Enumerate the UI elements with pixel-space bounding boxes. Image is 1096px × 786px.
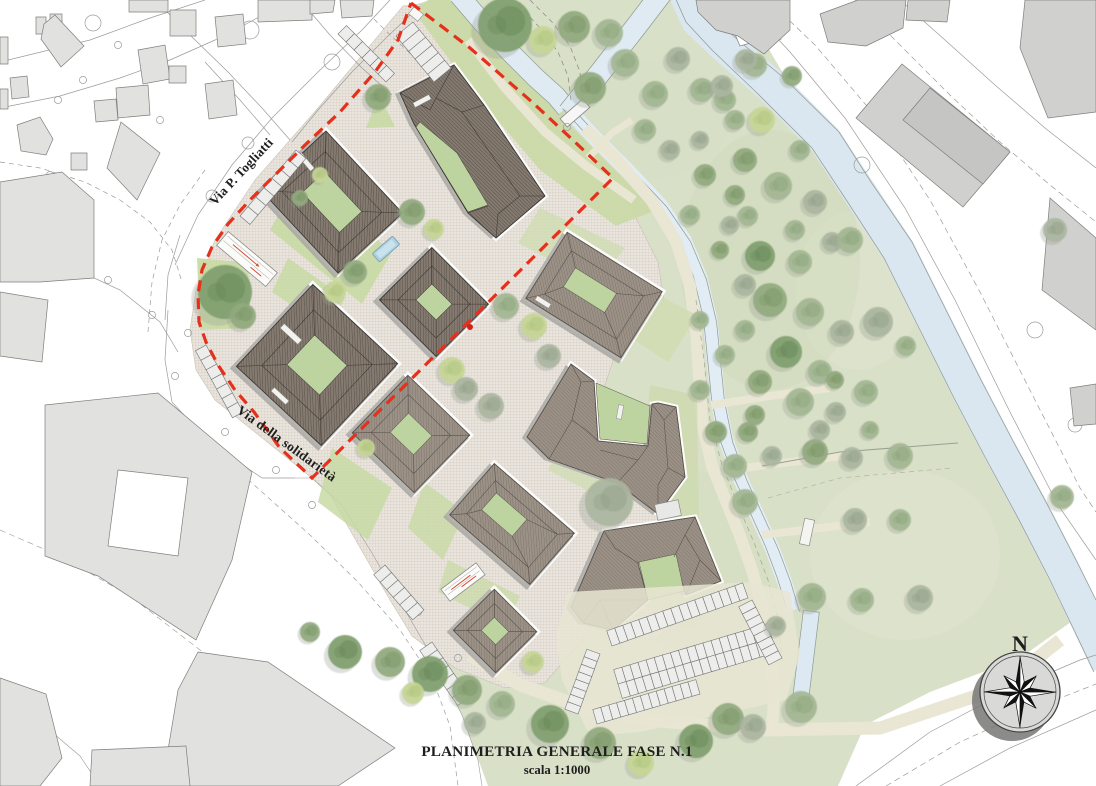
svg-text:scala 1:1000: scala 1:1000 <box>524 763 590 777</box>
svg-text:PLANIMETRIA GENERALE FASE N.1: PLANIMETRIA GENERALE FASE N.1 <box>421 743 692 760</box>
